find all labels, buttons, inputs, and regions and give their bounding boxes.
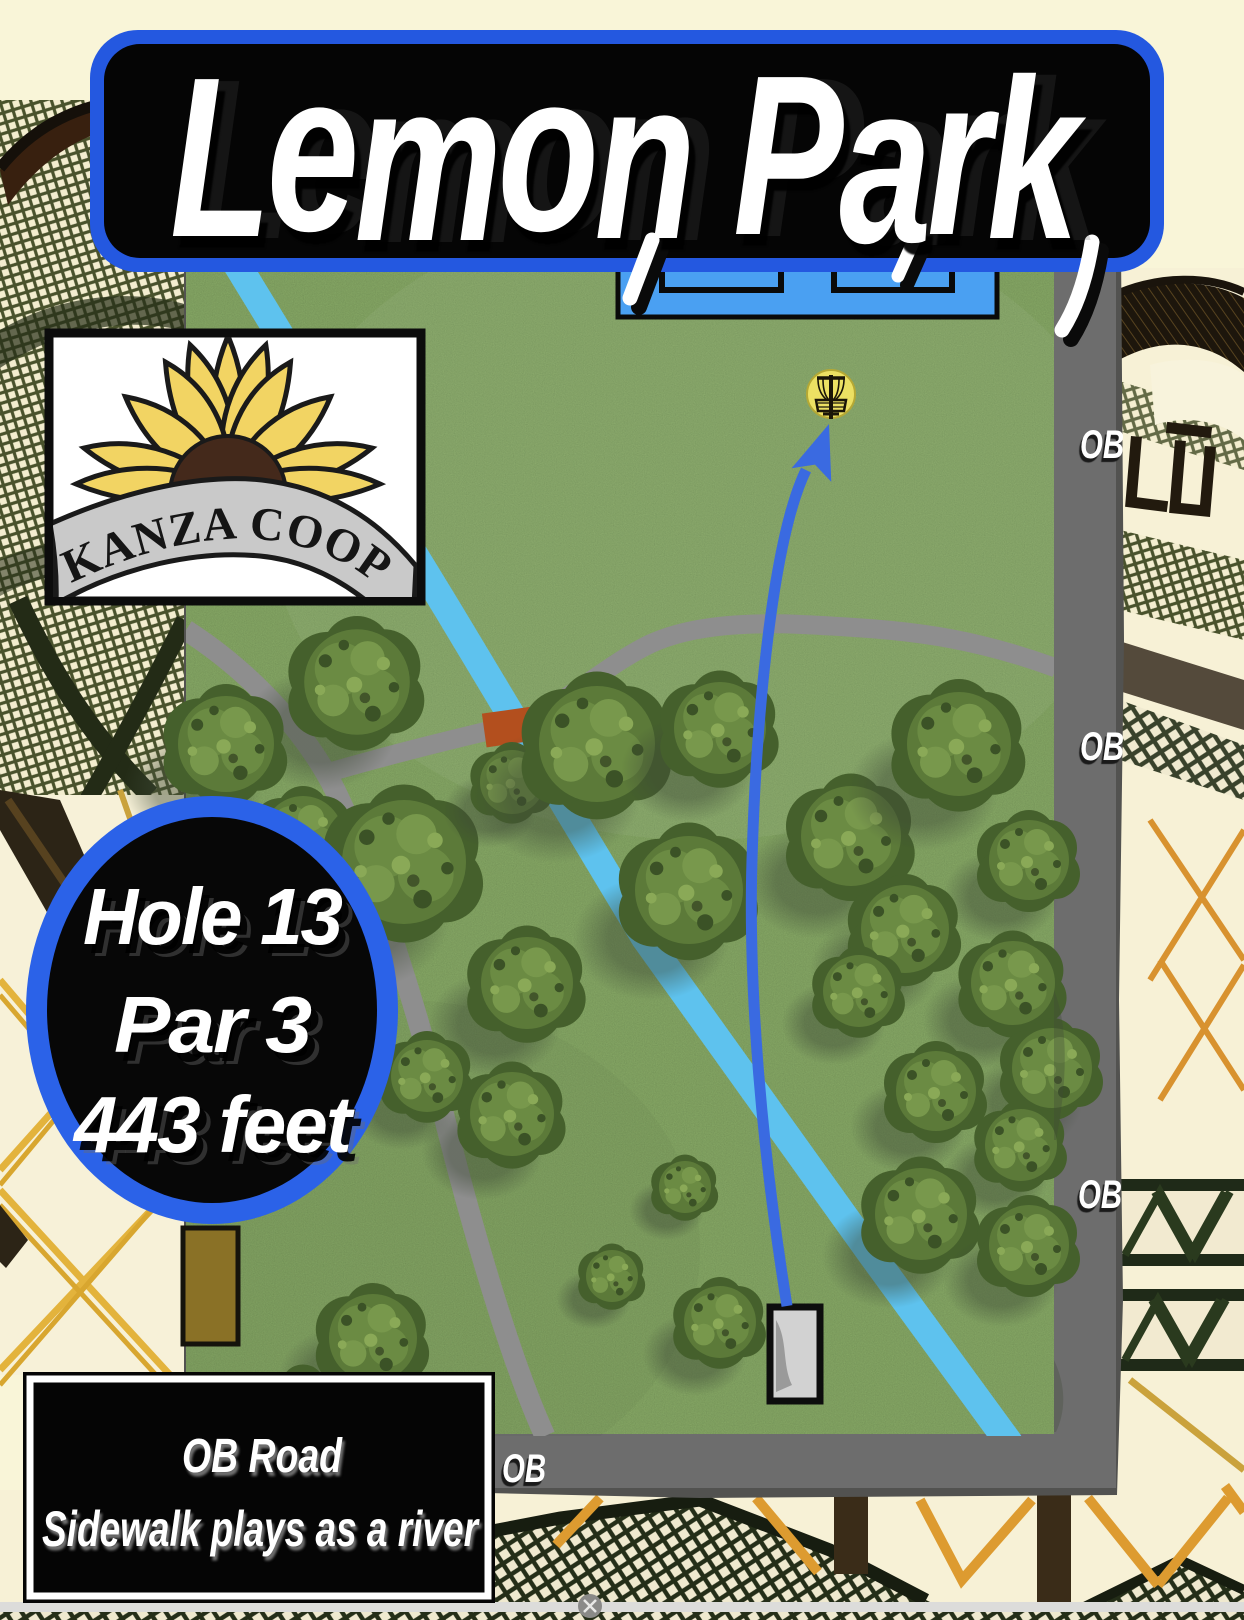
svg-text:Sidewalk plays as a river: Sidewalk plays as a river <box>42 1501 480 1557</box>
svg-text:OB: OB <box>1080 423 1124 467</box>
svg-text:OB Road: OB Road <box>182 1430 343 1483</box>
svg-text:Hole 13: Hole 13 <box>83 872 342 961</box>
svg-text:Lemon Park: Lemon Park <box>170 25 1087 291</box>
svg-text:443 feet: 443 feet <box>72 1080 355 1169</box>
svg-text:OB: OB <box>502 1447 546 1491</box>
svg-text:OB: OB <box>1078 1173 1122 1217</box>
svg-text:OB: OB <box>1080 725 1124 769</box>
svg-text:Par 3: Par 3 <box>114 980 312 1069</box>
